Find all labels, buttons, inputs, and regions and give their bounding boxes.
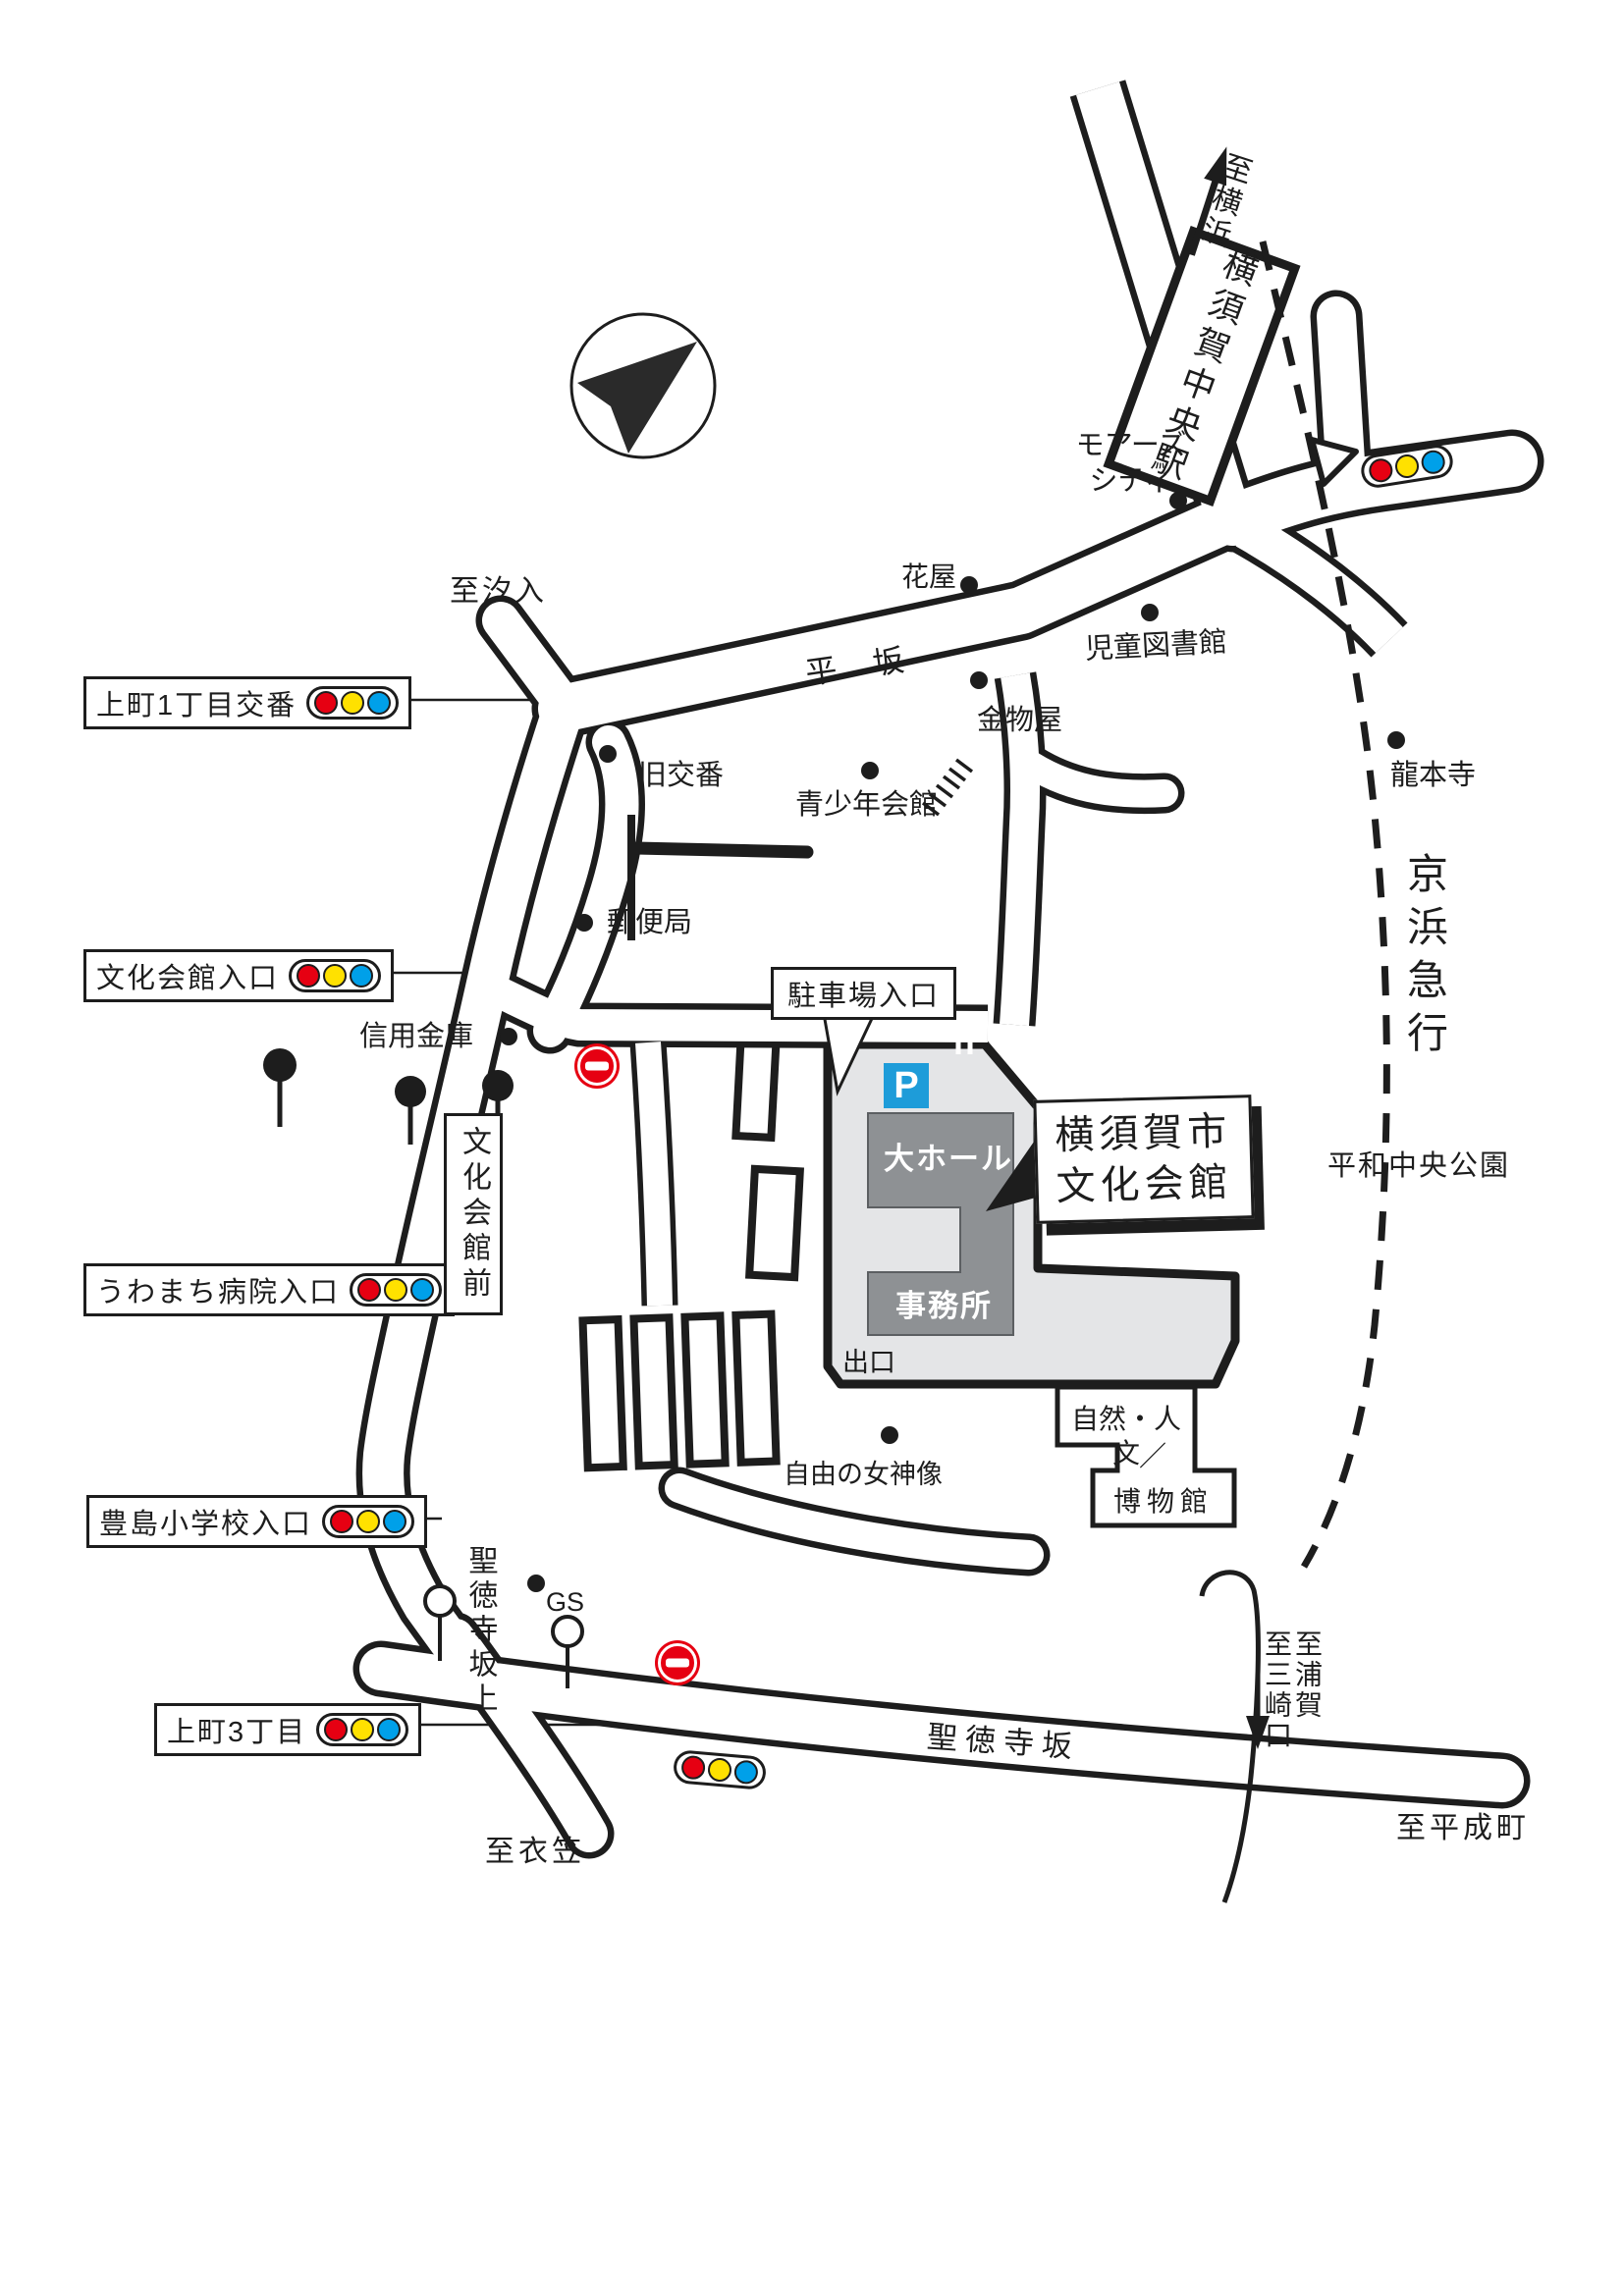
label-ryuhonji: 龍本寺 <box>1390 758 1476 793</box>
label-to-shioiri: 至汐入 <box>450 573 547 611</box>
signal-blue <box>367 691 391 715</box>
label-uemachi1-koban: 上町1丁目交番 <box>83 676 411 729</box>
label-text: 文化会館入口 <box>96 955 279 996</box>
label-yokosuka-bunkakaikan: 横須賀市 文化会館 <box>1033 1095 1254 1224</box>
signal-yellow <box>384 1278 407 1302</box>
signal-red <box>330 1510 353 1533</box>
signal-red <box>680 1755 706 1781</box>
label-heiwa-park: 平和中央公園 <box>1327 1148 1510 1184</box>
signal-yellow <box>323 964 347 988</box>
label-text: 駐車場入口 <box>787 973 940 1014</box>
label-shinyo-kinko: 信用金庫 <box>359 1019 473 1054</box>
label-jimusho: 事務所 <box>895 1288 993 1326</box>
signal-yellow <box>707 1757 732 1783</box>
label-to-heiseicho: 至平成町 <box>1396 1810 1530 1847</box>
north-compass-icon <box>571 314 715 457</box>
road-fills <box>381 88 1512 1834</box>
signal-blue <box>1420 449 1446 475</box>
label-gs: GS <box>546 1586 584 1620</box>
signal-blue <box>383 1510 406 1533</box>
label-kanamonoya: 金物屋 <box>977 703 1062 738</box>
traffic-light-icon <box>306 686 399 720</box>
signal-yellow <box>1393 453 1420 479</box>
label-to-misakiguchi: 至三崎口 <box>1260 1629 1294 1751</box>
traffic-light-icon <box>316 1713 408 1746</box>
label-uwamachi-hospital: うわまち病院入口 <box>83 1263 455 1316</box>
label-keihin-kyuko: 京浜急行 <box>1398 852 1450 1064</box>
city-blocks <box>583 1038 800 1468</box>
label-jiyu-megami: 自由の女神像 <box>784 1459 943 1492</box>
label-o-hall: 大ホール <box>884 1141 1013 1179</box>
signal-red <box>357 1278 381 1302</box>
label-toshima-elementary: 豊島小学校入口 <box>86 1495 427 1548</box>
no-entry-sign-icon <box>655 1640 700 1685</box>
signal-red <box>324 1718 348 1741</box>
signal-blue <box>350 964 373 988</box>
traffic-light-icon <box>289 959 381 992</box>
no-entry-sign-icon <box>574 1043 620 1089</box>
label-shotokuji-sakaue: 聖徳寺坂上 <box>461 1545 499 1717</box>
label-yubinkyoku: 郵便局 <box>607 905 692 940</box>
label-jido-toshokan: 児童図書館 <box>1084 624 1228 667</box>
label-deguchi: 出口 <box>842 1347 895 1380</box>
label-text: うわまち病院入口 <box>96 1269 340 1310</box>
signal-red <box>1368 456 1394 483</box>
access-map: 上町1丁目交番 文化会館入口 うわまち病院入口 豊島小学校入口 上町3丁目 駐車… <box>0 0 1624 2296</box>
label-text: 上町1丁目交番 <box>96 682 297 723</box>
signal-red <box>297 964 320 988</box>
label-text: 上町3丁目 <box>167 1709 306 1750</box>
label-kyu-koban: 旧交番 <box>638 758 724 793</box>
signal-blue <box>377 1718 401 1741</box>
label-to-kinugasa: 至衣笠 <box>485 1834 585 1871</box>
label-parking-entrance: 駐車場入口 <box>771 967 956 1020</box>
signal-blue <box>733 1759 759 1785</box>
traffic-light-icon <box>350 1273 442 1307</box>
parking-icon: P <box>884 1063 929 1108</box>
traffic-light-icon <box>322 1505 414 1538</box>
signal-red <box>314 691 338 715</box>
label-bunkakaikan-mae: 文化会館前 <box>444 1113 503 1315</box>
signal-yellow <box>356 1510 380 1533</box>
label-seishonen-kaikan: 青少年会館 <box>795 787 938 823</box>
label-bunkakaikan-iriguchi: 文化会館入口 <box>83 949 394 1002</box>
label-museum-line1: 自然・人文 <box>1065 1402 1187 1470</box>
signal-yellow <box>351 1718 374 1741</box>
label-uemachi3: 上町3丁目 <box>154 1703 421 1756</box>
label-hanaya: 花屋 <box>901 560 956 594</box>
label-to-uraga: 至浦賀 <box>1290 1629 1325 1721</box>
signal-blue <box>410 1278 434 1302</box>
label-museum-slash: ／ <box>1139 1439 1166 1473</box>
label-text: 豊島小学校入口 <box>99 1501 312 1542</box>
signal-yellow <box>341 691 364 715</box>
label-museum-line2: 博物館 <box>1103 1484 1224 1519</box>
